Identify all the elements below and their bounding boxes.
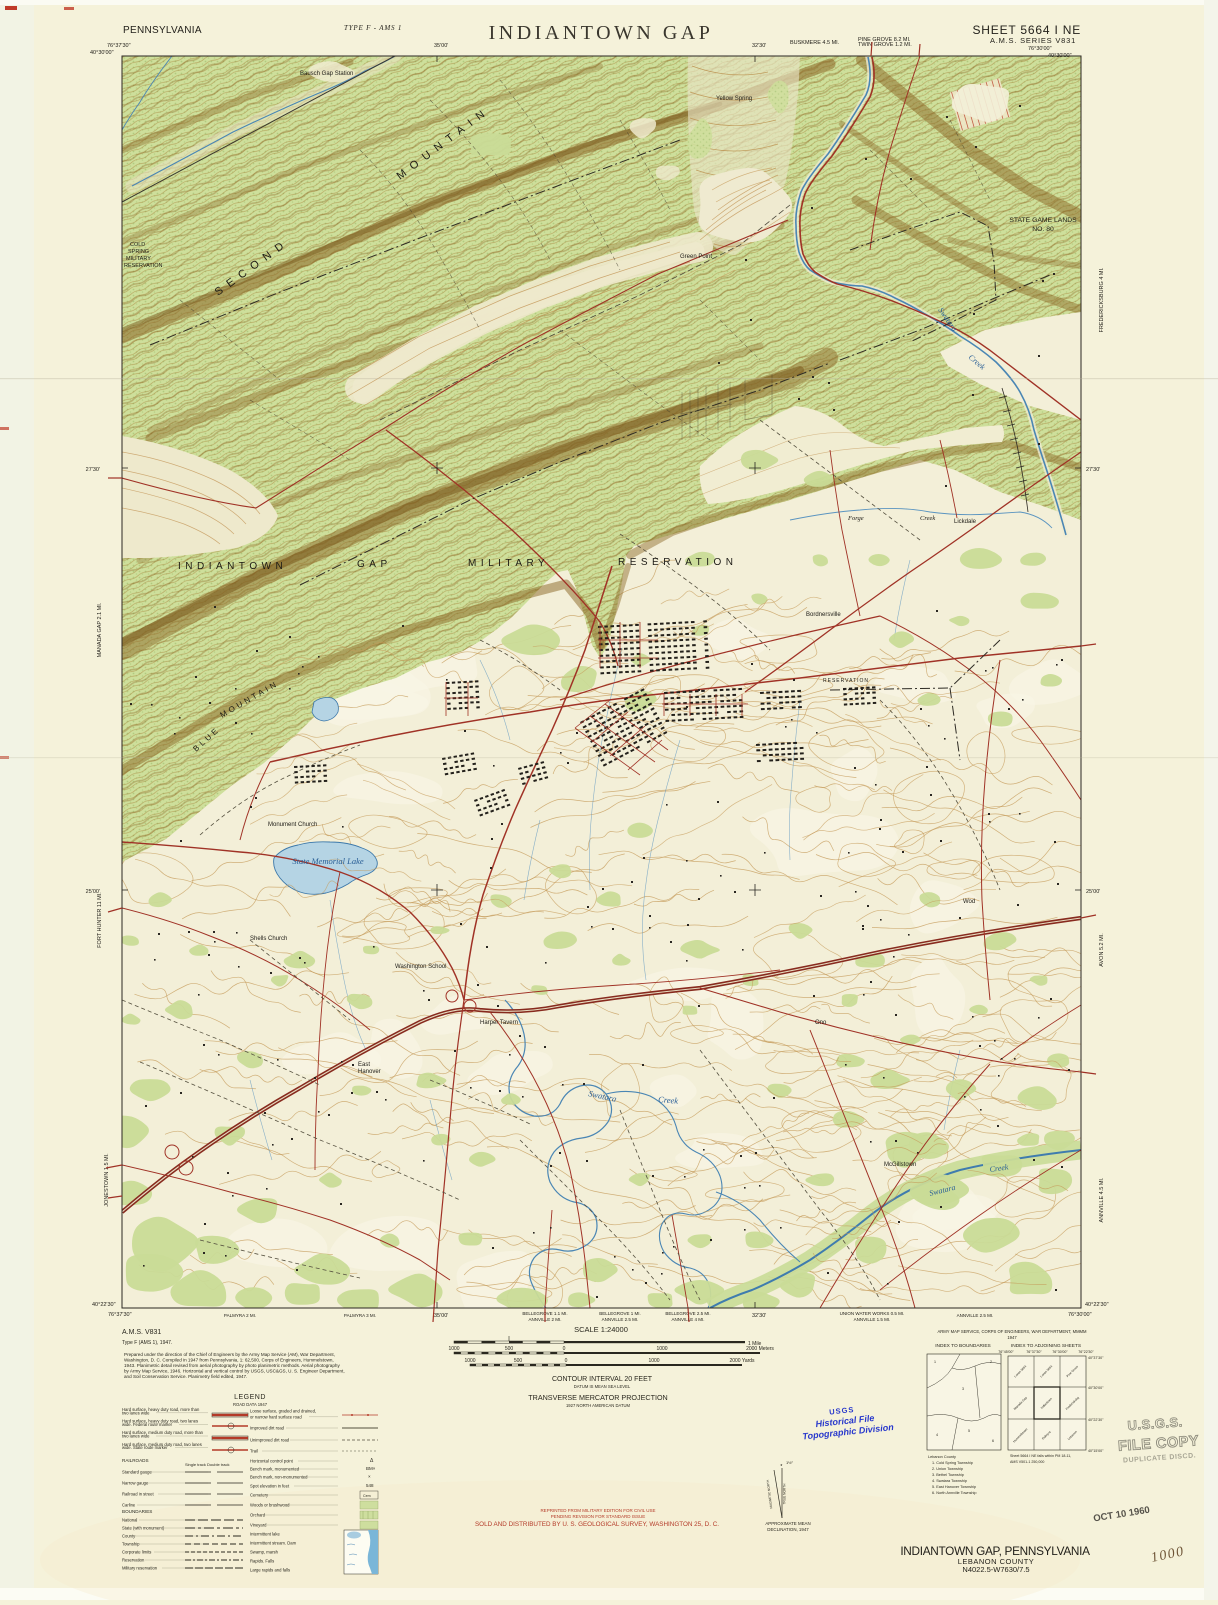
- svg-text:CONTOUR INTERVAL 20 FEET: CONTOUR INTERVAL 20 FEET: [552, 1376, 653, 1383]
- svg-text:DATUM IS MEAN SEA LEVEL: DATUM IS MEAN SEA LEVEL: [574, 1384, 631, 1389]
- svg-text:500: 500: [505, 1346, 514, 1352]
- svg-text:Cemetery: Cemetery: [250, 1493, 269, 1498]
- svg-text:1000: 1000: [464, 1358, 475, 1364]
- svg-text:REPRINTED FROM MILITARY EDITIO: REPRINTED FROM MILITARY EDITION FOR CIVI…: [540, 1508, 655, 1513]
- svg-text:State Memorial Lake: State Memorial Lake: [292, 856, 364, 866]
- svg-text:76°30'00": 76°30'00": [1052, 1350, 1068, 1354]
- svg-text:MANADA GAP 2.1 MI.: MANADA GAP 2.1 MI.: [97, 602, 103, 657]
- svg-text:SCALE 1:24000: SCALE 1:24000: [574, 1325, 628, 1334]
- svg-text:5. East Hanover Township: 5. East Hanover Township: [932, 1485, 976, 1489]
- svg-text:COLD: COLD: [130, 242, 145, 248]
- svg-text:4. Swatara Township: 4. Swatara Township: [932, 1479, 967, 1483]
- svg-text:Washington, D. C. Compiled i: Washington, D. C. Compiled in 1947 from …: [124, 1358, 334, 1363]
- svg-text:JONESTOWN 1.5 MI.: JONESTOWN 1.5 MI.: [104, 1153, 110, 1207]
- svg-text:Bench mark, monumented: Bench mark, monumented: [250, 1467, 300, 1472]
- svg-text:TYPE F - AMS 1: TYPE F - AMS 1: [344, 24, 402, 32]
- svg-text:Military reservation: Military reservation: [122, 1566, 158, 1571]
- svg-text:Rapids. Falls: Rapids. Falls: [250, 1559, 274, 1564]
- svg-text:Cem: Cem: [363, 1494, 371, 1498]
- svg-text:Forge: Forge: [847, 515, 864, 522]
- svg-text:TRUE NORTH: TRUE NORTH: [783, 1483, 787, 1505]
- svg-text:ARMY MAP SERVICE, CORPS OF ENG: ARMY MAP SERVICE, CORPS OF ENGINEERS, WA…: [937, 1329, 1087, 1334]
- svg-text:40°30'00": 40°30'00": [1088, 1386, 1104, 1390]
- svg-text:Orchard: Orchard: [250, 1513, 266, 1518]
- svg-text:INDIANTOWN GAP: INDIANTOWN GAP: [489, 22, 714, 44]
- svg-text:wide. Federal route marker: wide. Federal route marker: [122, 1422, 173, 1427]
- svg-text:National: National: [122, 1518, 137, 1523]
- svg-text:×: ×: [368, 1474, 371, 1479]
- svg-text:35'00': 35'00': [434, 1313, 448, 1319]
- svg-text:Unimproved dirt road: Unimproved dirt road: [250, 1438, 290, 1443]
- svg-text:0: 0: [565, 1358, 568, 1364]
- svg-text:Standard gauge: Standard gauge: [122, 1470, 152, 1475]
- svg-text:NO. 80: NO. 80: [1032, 226, 1054, 233]
- svg-text:Washington School: Washington School: [395, 964, 446, 970]
- svg-text:Reservation: Reservation: [122, 1558, 145, 1563]
- svg-text:1000: 1000: [648, 1358, 659, 1364]
- svg-text:FORT HUNTER 11 MI.: FORT HUNTER 11 MI.: [97, 892, 103, 948]
- svg-text:40°30'00": 40°30'00": [90, 50, 114, 56]
- svg-text:PENNSYLVANIA: PENNSYLVANIA: [123, 25, 202, 36]
- svg-text:76°37'30": 76°37'30": [108, 1312, 132, 1318]
- svg-text:RESERVATION: RESERVATION: [823, 678, 869, 684]
- svg-text:27'30': 27'30': [86, 467, 100, 473]
- svg-text:4: 4: [936, 1433, 938, 1437]
- svg-text:INDEX TO ADJOINING SHEETS: INDEX TO ADJOINING SHEETS: [1011, 1343, 1081, 1349]
- svg-text:Monument Church: Monument Church: [268, 822, 317, 828]
- svg-text:6. North Annville Township: 6. North Annville Township: [932, 1491, 976, 1495]
- svg-text:TRANSVERSE MERCATOR PROJECTION: TRANSVERSE MERCATOR PROJECTION: [528, 1393, 668, 1402]
- svg-text:RAILROADS: RAILROADS: [122, 1458, 149, 1463]
- svg-text:76°30'00": 76°30'00": [1068, 1312, 1092, 1318]
- svg-text:BUSKMERE 4.5 MI.: BUSKMERE 4.5 MI.: [790, 40, 840, 46]
- svg-text:40°37'30": 40°37'30": [1088, 1356, 1104, 1360]
- svg-text:★: ★: [780, 1463, 783, 1467]
- svg-text:Large rapids and falls: Large rapids and falls: [250, 1568, 290, 1573]
- svg-text:1½°: 1½°: [786, 1460, 794, 1465]
- svg-text:2000 Yards: 2000 Yards: [729, 1358, 755, 1364]
- svg-text:APPROXIMATE MEAN: APPROXIMATE MEAN: [765, 1521, 810, 1526]
- svg-text:1927 NORTH AMERICAN DATUM: 1927 NORTH AMERICAN DATUM: [566, 1403, 631, 1408]
- svg-text:or narrow hard surface road: or narrow hard surface road: [250, 1414, 302, 1419]
- svg-text:Corporate limits: Corporate limits: [122, 1550, 151, 1555]
- svg-text:SHEET 5664 I NE: SHEET 5664 I NE: [973, 23, 1082, 37]
- svg-text:Vineyard: Vineyard: [250, 1523, 267, 1528]
- svg-text:TWIN GROVE 1.2 MI.: TWIN GROVE 1.2 MI.: [858, 42, 912, 48]
- svg-text:and Soil Conservation Service.: and Soil Conservation Service. Planimetr…: [124, 1374, 247, 1379]
- svg-text:76°30'00": 76°30'00": [1028, 46, 1052, 52]
- svg-text:0: 0: [563, 1346, 566, 1352]
- svg-text:FREDERICKSBURG 4 MI.: FREDERICKSBURG 4 MI.: [1099, 267, 1105, 333]
- svg-text:1943. Planimetric detail rev: 1943. Planimetric detail revised from ae…: [124, 1363, 340, 1368]
- svg-text:ANNVILLE 4 MI.: ANNVILLE 4 MI.: [671, 1317, 704, 1322]
- svg-text:INDIANTOWN GAP, PENNSYLVANIA: INDIANTOWN GAP, PENNSYLVANIA: [900, 1544, 1090, 1558]
- svg-text:ANNVILLE 2.5 MI.: ANNVILLE 2.5 MI.: [957, 1313, 994, 1318]
- svg-text:76°37'30": 76°37'30": [107, 43, 131, 49]
- svg-text:two lanes wide: two lanes wide: [122, 1434, 150, 1439]
- svg-text:Woods or brushwood: Woods or brushwood: [250, 1503, 290, 1508]
- svg-text:2000 Meters: 2000 Meters: [746, 1346, 774, 1352]
- svg-text:Bordnersville: Bordnersville: [806, 612, 841, 618]
- svg-text:Bausch Gap Station: Bausch Gap Station: [300, 71, 353, 77]
- svg-text:40°30'00": 40°30'00": [1048, 53, 1072, 59]
- svg-text:AVON 5.2 MI.: AVON 5.2 MI.: [1099, 933, 1105, 967]
- svg-text:PENDING REVISION FOR STANDARD: PENDING REVISION FOR STANDARD ISSUE: [551, 1514, 645, 1519]
- svg-text:Spot elevation in feet: Spot elevation in feet: [250, 1484, 290, 1489]
- svg-text:40°22'30": 40°22'30": [1088, 1418, 1104, 1422]
- svg-text:Narrow gauge: Narrow gauge: [122, 1481, 149, 1486]
- svg-text:Green Point: Green Point: [680, 254, 712, 260]
- svg-text:Improved dirt road: Improved dirt road: [250, 1426, 285, 1431]
- svg-text:2. Union Township: 2. Union Township: [932, 1467, 963, 1471]
- svg-text:Intermittent stream. Dam: Intermittent stream. Dam: [250, 1541, 297, 1546]
- svg-text:Trail: Trail: [250, 1449, 258, 1454]
- svg-text:BOUNDARIES: BOUNDARIES: [122, 1509, 152, 1514]
- svg-text:RESERVATION: RESERVATION: [124, 263, 163, 269]
- svg-text:6: 6: [992, 1439, 994, 1443]
- svg-text:STATE GAME LANDS: STATE GAME LANDS: [1009, 217, 1077, 224]
- svg-text:Swamp, marsh: Swamp, marsh: [250, 1550, 279, 1555]
- svg-text:76°22'30": 76°22'30": [1078, 1350, 1094, 1354]
- svg-text:by Army Map Service, 1946. H: by Army Map Service, 1946. Horizontal an…: [124, 1369, 345, 1374]
- svg-text:SOLD AND DISTRIBUTED BY U. S.: SOLD AND DISTRIBUTED BY U. S. GEOLOGICAL…: [475, 1521, 719, 1528]
- svg-text:McGillstown: McGillstown: [884, 1162, 916, 1168]
- svg-text:3: 3: [962, 1387, 964, 1391]
- svg-text:ANNVILLE 2.5 MI.: ANNVILLE 2.5 MI.: [602, 1317, 639, 1322]
- svg-text:25'00': 25'00': [1086, 889, 1100, 895]
- svg-text:Sheet 5664 I NE falls within P: Sheet 5664 I NE falls within PM 18-11,: [1010, 1454, 1071, 1458]
- svg-text:Yellow Spring: Yellow Spring: [716, 96, 752, 102]
- svg-text:Carline: Carline: [122, 1503, 136, 1508]
- svg-text:PALMYRA 2 MI.: PALMYRA 2 MI.: [224, 1313, 256, 1318]
- svg-text:Hanover: Hanover: [358, 1069, 381, 1075]
- svg-text:Township: Township: [122, 1542, 140, 1547]
- svg-text:two lanes wide: two lanes wide: [122, 1410, 150, 1415]
- svg-text:Harper Tavern: Harper Tavern: [480, 1020, 518, 1026]
- svg-text:Single track Double track: Single track Double track: [185, 1462, 229, 1467]
- svg-text:76°45'00": 76°45'00": [998, 1350, 1014, 1354]
- svg-text:Ono: Ono: [815, 1020, 827, 1026]
- svg-text:UNION WATER WORKS 0.5 MI.: UNION WATER WORKS 0.5 MI.: [840, 1311, 905, 1316]
- svg-text:1000: 1000: [448, 1346, 459, 1352]
- svg-text:Wod: Wod: [963, 899, 975, 905]
- svg-text:Bench mark, non-monumented: Bench mark, non-monumented: [250, 1475, 308, 1480]
- svg-text:INDIANTOWN: INDIANTOWN: [178, 561, 287, 572]
- svg-text:BELLEGROVE 1 MI.: BELLEGROVE 1 MI.: [599, 1311, 641, 1316]
- svg-text:Lickdale: Lickdale: [954, 519, 977, 525]
- svg-text:PALMYRA 3 MI.: PALMYRA 3 MI.: [344, 1313, 376, 1318]
- svg-text:LEGEND: LEGEND: [234, 1394, 266, 1401]
- svg-text:MILITARY: MILITARY: [468, 558, 549, 569]
- svg-text:RESERVATION: RESERVATION: [618, 557, 738, 568]
- svg-text:wide. State route marker: wide. State route marker: [122, 1445, 168, 1450]
- svg-text:N4022.5-W7630/7.5: N4022.5-W7630/7.5: [962, 1565, 1029, 1574]
- svg-text:County: County: [122, 1534, 136, 1539]
- svg-text:Intermittent lake: Intermittent lake: [250, 1532, 280, 1537]
- svg-text:AMS V501-1 250,000: AMS V501-1 250,000: [1010, 1460, 1044, 1464]
- svg-text:2: 2: [990, 1360, 992, 1364]
- svg-text:East: East: [358, 1062, 370, 1068]
- svg-text:40°15'00": 40°15'00": [1088, 1449, 1104, 1453]
- svg-text:1000: 1000: [656, 1346, 667, 1352]
- svg-text:Railroad in street: Railroad in street: [122, 1492, 154, 1497]
- svg-text:1. Cold Spring Township: 1. Cold Spring Township: [932, 1461, 973, 1465]
- svg-text:40°22'30": 40°22'30": [1085, 1302, 1109, 1308]
- svg-text:Creek: Creek: [920, 515, 935, 522]
- svg-text:GAP: GAP: [357, 559, 392, 570]
- svg-text:32'30': 32'30': [752, 1313, 766, 1319]
- svg-text:Type F (AMS 1), 1947.: Type F (AMS 1), 1947.: [122, 1340, 172, 1346]
- svg-text:5: 5: [968, 1429, 970, 1433]
- svg-text:Shells Church: Shells Church: [250, 936, 287, 942]
- svg-text:MILITARY: MILITARY: [126, 256, 151, 262]
- svg-text:A.M.S. V831: A.M.S. V831: [122, 1329, 161, 1336]
- svg-text:INDEX TO BOUNDARIES: INDEX TO BOUNDARIES: [935, 1343, 991, 1349]
- svg-text:A.M.S. SERIES V831: A.M.S. SERIES V831: [990, 36, 1076, 45]
- svg-text:Horizontal control point: Horizontal control point: [250, 1459, 294, 1464]
- svg-text:32'30': 32'30': [752, 43, 766, 49]
- svg-text:DECLINATION, 1947: DECLINATION, 1947: [767, 1527, 809, 1532]
- svg-text:35'00': 35'00': [434, 43, 448, 49]
- svg-text:Lebanon County: Lebanon County: [928, 1455, 956, 1459]
- svg-text:548: 548: [366, 1483, 374, 1488]
- svg-text:27'30': 27'30': [1086, 467, 1100, 473]
- svg-text:1: 1: [934, 1360, 936, 1364]
- svg-text:76°37'30": 76°37'30": [1026, 1350, 1042, 1354]
- svg-text:ANNVILLE 4.5 MI.: ANNVILLE 4.5 MI.: [1099, 1177, 1105, 1222]
- svg-text:ROAD DATA 1947: ROAD DATA 1947: [233, 1402, 268, 1407]
- svg-text:State (with monument): State (with monument): [122, 1526, 165, 1531]
- svg-text:1947: 1947: [1007, 1335, 1017, 1340]
- svg-text:Creek: Creek: [658, 1094, 679, 1106]
- svg-text:BM×: BM×: [366, 1466, 376, 1471]
- svg-text:Prepared under the direction o: Prepared under the direction of the Chie…: [124, 1352, 335, 1357]
- svg-text:Loose surface, graded and drai: Loose surface, graded and drained,: [250, 1409, 316, 1414]
- svg-text:500: 500: [514, 1358, 523, 1364]
- svg-text:3. Bethel Township: 3. Bethel Township: [932, 1473, 964, 1477]
- svg-text:40°22'30": 40°22'30": [92, 1302, 116, 1308]
- svg-text:ANNVILLE 1.5 MI.: ANNVILLE 1.5 MI.: [854, 1317, 891, 1322]
- svg-text:SPRING: SPRING: [128, 249, 149, 255]
